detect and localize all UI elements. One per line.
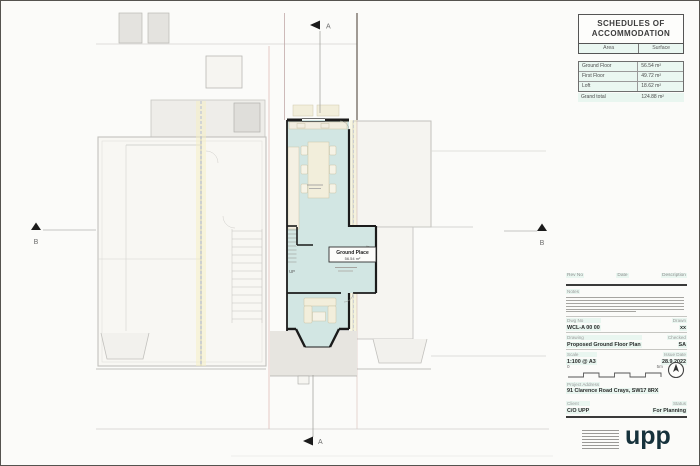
section-arrow-icon [31,223,41,231]
row-area: First Floor [579,72,638,81]
row-area: Loft [579,82,638,91]
schedules-table: SCHEDULES OF ACCOMMODATION Area Surface … [578,14,684,102]
dwg-no-field: Dwg No WCL-A 00 00 [566,318,601,331]
divider [566,332,687,333]
right-neighbour-building [353,121,546,369]
schedule-row: Ground Floor 56.54 m² [579,62,683,72]
scale-field: Scale 1:100 @ A3 [566,352,597,365]
north-arrow-icon [667,361,685,379]
chair [301,165,308,174]
neighbour-bay-window [101,333,149,359]
project-address-value: 91 Clarence Road Crays, SW17 8RX [566,388,659,394]
schedules-total-row: Grand total 124.88 m² [578,93,684,102]
dwg-no-label: Dwg No [566,318,601,323]
row-surface: 18.62 m² [638,82,683,91]
section-letter: A [326,24,331,31]
section-arrow-icon [303,437,313,446]
checked-field: Checked SA [667,335,687,348]
row-area: Ground Floor [579,62,638,71]
tiny-text-line [338,271,353,272]
drawing-label: Drawing [566,335,642,340]
notes-label: Notes [566,289,580,294]
col-rev-no: Rev No [566,273,584,278]
tiny-text-line [307,185,323,186]
field-row-dwg: Dwg No WCL-A 00 00 Drawn xx [566,318,687,331]
chair [301,146,308,155]
chair [330,184,337,193]
sofa [304,298,336,306]
schedule-row: First Floor 49.72 m² [579,72,683,82]
chair [330,165,337,174]
total-label: Grand total [578,93,638,102]
front-gate [298,376,309,384]
stairs-up-label: UP [289,269,295,274]
section-marker-a-bottom: A [303,375,323,446]
section-letter: A [318,439,323,446]
status-label: Status [672,401,687,406]
section-arrow-icon [310,21,320,30]
room-area: 56.54 m² [345,256,361,261]
drawn-value: xx [679,325,687,331]
drawn-label: Drawn [672,318,687,323]
dwg-no-value: WCL-A 00 00 [566,325,601,331]
divider-thick [566,284,687,286]
outbuilding [148,13,169,43]
scale-bar-end: 5m [657,364,663,369]
dining-table [308,142,329,198]
drawing-sheet: UP Ground Place [0,0,700,466]
schedule-row: Loft 18.62 m² [579,82,683,91]
rear-patio-furniture [293,105,339,116]
neighbour-bay-window [373,339,427,363]
total-value: 124.88 m² [638,93,684,102]
outbuilding [119,13,142,43]
chair [301,184,308,193]
revision-header-row: Rev No Date Description [566,273,687,278]
upp-logo: upp [625,424,671,449]
scale-bar-graphic [567,371,663,379]
firm-fine-print [582,430,619,451]
col-date: Date [616,273,628,278]
project-address-label: Project Address [566,382,600,387]
col-description: Description [661,273,687,278]
scale-bar: 0 5m [567,364,663,380]
col-header-surface: Surface [639,44,683,53]
drawing-field: Drawing Proposed Ground Floor Plan [566,335,642,348]
neighbour-outline [98,137,266,366]
drawn-field: Drawn xx [672,318,687,331]
schedules-title: SCHEDULES OF ACCOMMODATION [578,14,684,44]
divider [566,349,687,350]
notes-fine-print [566,297,684,310]
schedules-header-row: Area Surface [578,44,684,54]
col-header-area: Area [579,44,639,53]
field-row-client: Client C/O UPP Status For Planning [566,401,687,414]
client-value: C/O UPP [566,408,590,414]
chair [330,146,337,155]
street-boundary-lines [96,429,553,456]
checked-value: SA [678,342,688,348]
sofa-arm [328,306,336,323]
sofa-arm [304,306,312,323]
divider-thick [566,416,687,418]
checked-label: Checked [667,335,687,340]
section-marker-b-right: B [504,224,547,248]
tiny-text-line [335,267,357,268]
notes-fine-print-last-line [566,311,636,312]
row-surface: 56.54 m² [638,62,683,71]
field-row-drawing: Drawing Proposed Ground Floor Plan Check… [566,335,687,348]
row-surface: 49.72 m² [638,72,683,81]
section-letter: B [34,239,39,246]
scale-label: Scale [566,352,597,357]
scale-bar-start: 0 [567,364,570,369]
client-field: Client C/O UPP [566,401,590,414]
section-marker-a-top: A [310,21,331,114]
divider [566,316,687,317]
coffee-table [313,312,326,321]
section-marker-b-left: B [31,223,96,247]
floor-plan-canvas: UP Ground Place [1,1,553,466]
schedules-rows: Ground Floor 56.54 m² First Floor 49.72 … [578,61,684,92]
chimney [234,103,260,132]
section-letter: B [540,240,545,247]
neighbour-outline [353,121,431,227]
drawing-value: Proposed Ground Floor Plan [566,342,642,348]
status-field: Status For Planning [652,401,687,414]
garden-structure [206,56,242,88]
issue-date-label: Issue Date [663,352,687,357]
kitchen-island [288,147,299,229]
client-label: Client [566,401,590,406]
tiny-text-line [309,188,321,189]
status-value: For Planning [652,408,687,414]
section-arrow-icon [537,224,547,232]
